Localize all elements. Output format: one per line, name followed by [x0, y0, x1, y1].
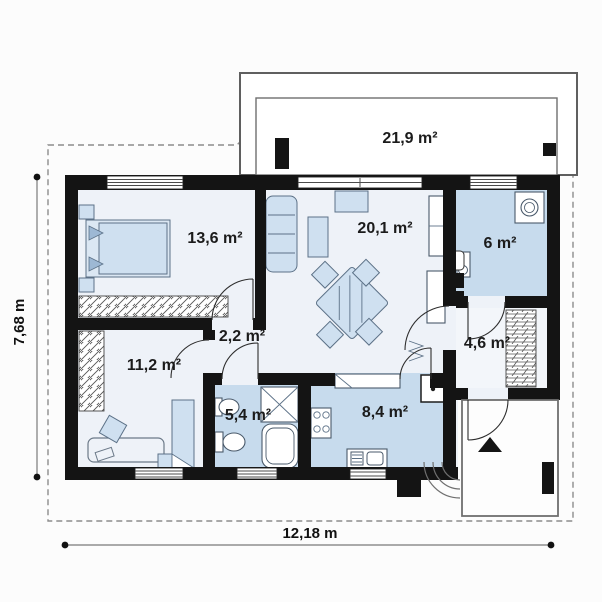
bed-blanket	[99, 223, 167, 274]
nightstand	[79, 205, 94, 219]
living-room-area-label: 20,1 m²	[357, 220, 412, 237]
toilet-tank	[215, 432, 223, 452]
terrace-post	[543, 143, 556, 156]
window	[350, 469, 386, 479]
tv-stand	[335, 191, 368, 212]
washing-machine	[515, 192, 544, 223]
nightstand	[79, 278, 94, 292]
terrace	[240, 73, 577, 175]
kitchen-area-label: 8,4 m²	[362, 404, 408, 421]
hall-entry-area-label: 4,6 m²	[464, 335, 510, 352]
porch-slab	[462, 400, 558, 516]
bathroom-area-label: 5,4 m²	[225, 407, 271, 424]
cabinet	[427, 271, 445, 323]
floor-plan-drawing: 21,9 m² 13,6 m² 20,1 m² 6 m² 2,2 m² 4,6 …	[0, 0, 602, 602]
nightstand	[158, 454, 172, 468]
height-dimension-label: 7,68 m	[11, 299, 28, 346]
wardrobe	[79, 296, 228, 317]
bedroom-main-area-label: 13,6 m²	[187, 230, 242, 247]
kitchen-counter	[335, 374, 400, 388]
toilet	[223, 433, 245, 451]
bedroom-second-area-label: 11,2 m²	[127, 357, 181, 374]
porch-column	[542, 462, 554, 494]
terrace-post	[275, 138, 289, 169]
utility-area-label: 6 m²	[484, 235, 517, 252]
hall-inner-area-label: 2,2 m²	[219, 328, 265, 345]
width-dimension-label: 12,18 m	[282, 525, 337, 542]
wardrobe	[79, 331, 104, 411]
terrace-area-label: 21,9 m²	[382, 130, 437, 147]
hall-wardrobe	[506, 310, 536, 387]
bathtub	[262, 424, 298, 468]
armchair	[308, 217, 328, 257]
floor-plan-image: 21,9 m² 13,6 m² 20,1 m² 6 m² 2,2 m² 4,6 …	[0, 0, 602, 602]
